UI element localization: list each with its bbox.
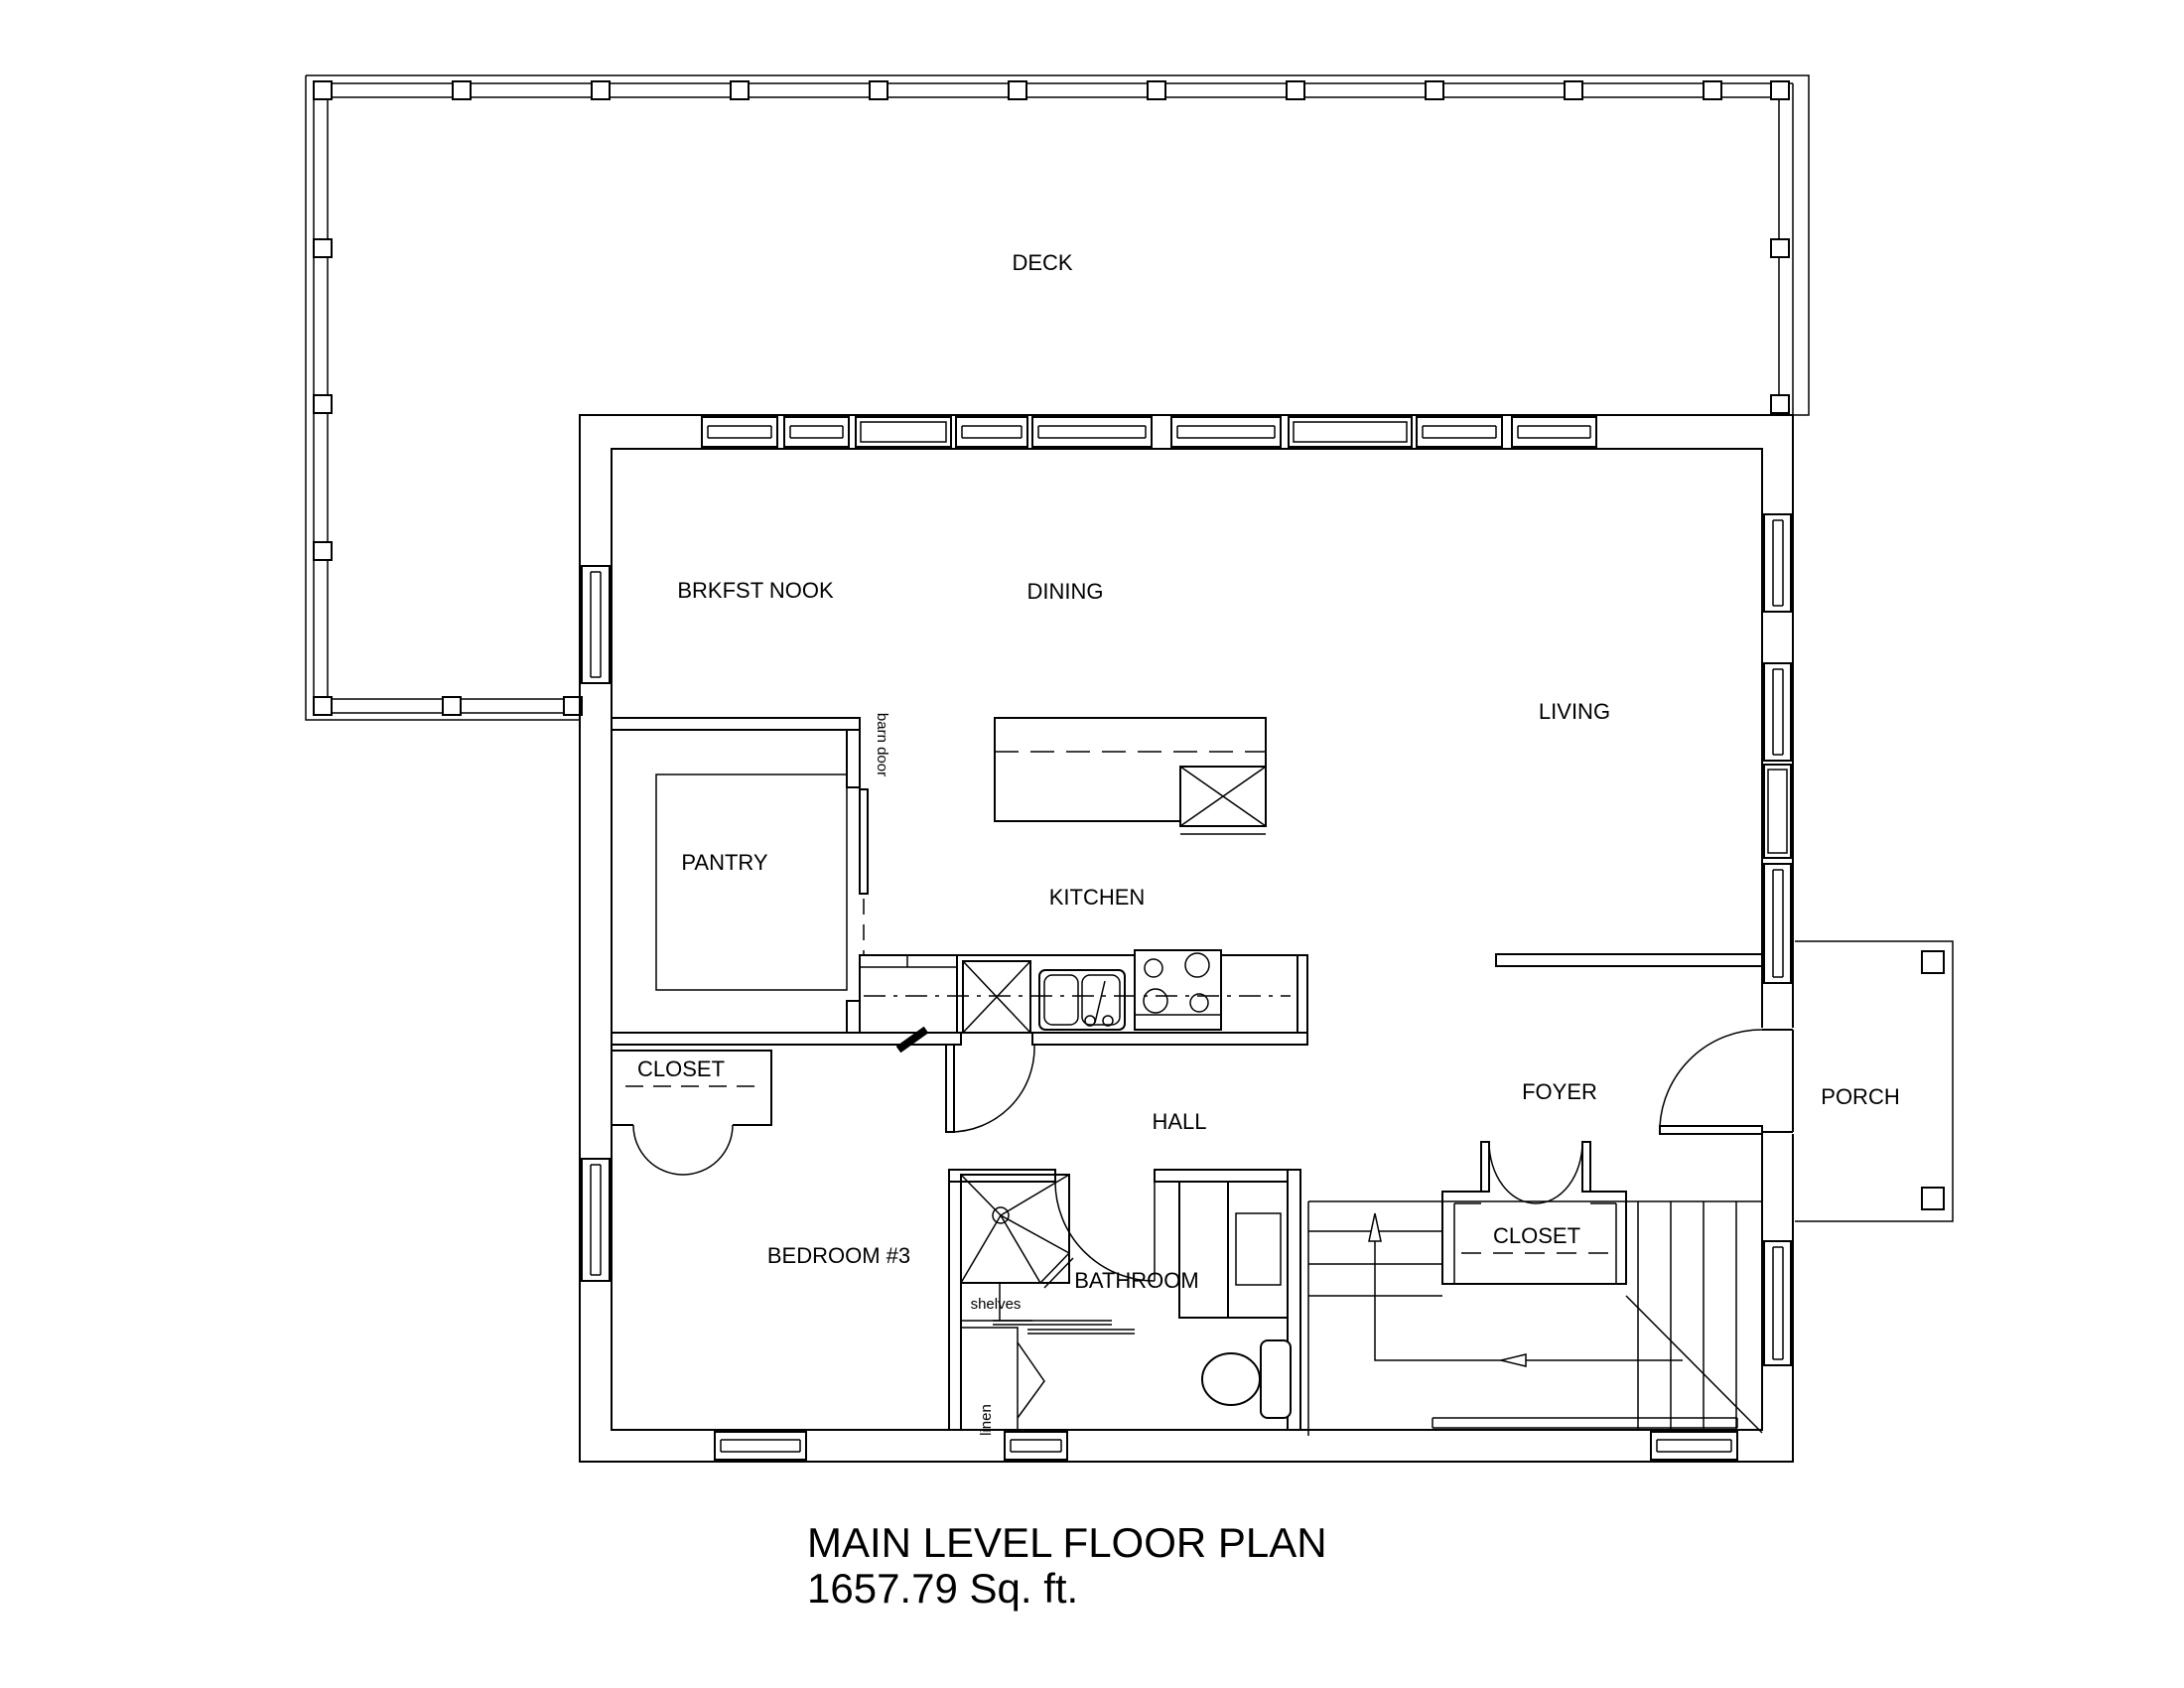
bathroom-label: BATHROOM	[1074, 1268, 1198, 1293]
floor-plan-page: DECK BRKFST NOOK DINING LIVING PANTRY KI…	[0, 0, 2184, 1688]
exterior-walls	[580, 415, 1793, 1462]
bedroom-closet-label: CLOSET	[637, 1056, 725, 1081]
deck-label: DECK	[1012, 250, 1072, 275]
stair-down-arrow	[1501, 1354, 1526, 1366]
pantry	[656, 774, 868, 998]
kitchen-counter	[860, 718, 1307, 1050]
porch-label: PORCH	[1821, 1084, 1899, 1109]
windows-right-wall	[1764, 514, 1791, 1365]
bedroom-door	[946, 1045, 1034, 1132]
windows-top-wall	[702, 417, 1596, 447]
floor-plan-drawing: DECK BRKFST NOOK DINING LIVING PANTRY KI…	[0, 0, 2184, 1688]
stair-closet-label: CLOSET	[1493, 1223, 1580, 1248]
kitchen-island	[995, 718, 1266, 834]
porch	[1795, 941, 1953, 1221]
bedroom3-label: BEDROOM #3	[767, 1243, 910, 1268]
dishwasher	[963, 961, 1030, 1033]
bedroom-closet-doors	[633, 1125, 733, 1175]
stair-up-arrow	[1369, 1213, 1381, 1241]
linen-label: linen	[978, 1404, 995, 1436]
room-labels: DECK BRKFST NOOK DINING LIVING PANTRY KI…	[637, 250, 1900, 1293]
pantry-label: PANTRY	[681, 850, 768, 875]
living-label: LIVING	[1539, 699, 1610, 724]
front-door	[1660, 1028, 1797, 1134]
title-block: MAIN LEVEL FLOOR PLAN 1657.79 Sq. ft.	[807, 1519, 1327, 1612]
stove-cooktop	[1135, 950, 1221, 1030]
foyer-label: FOYER	[1522, 1079, 1597, 1104]
windows-left-wall	[582, 566, 610, 1281]
brkfst-nook-label: BRKFST NOOK	[677, 578, 834, 603]
kitchen-label: KITCHEN	[1049, 885, 1146, 910]
refrigerator	[860, 955, 957, 1033]
kitchen-sink	[1039, 970, 1125, 1030]
hall-label: HALL	[1152, 1109, 1206, 1134]
plan-title: MAIN LEVEL FLOOR PLAN	[807, 1519, 1327, 1566]
windows-bottom-wall	[715, 1432, 1737, 1460]
barn-door-label: barn door	[874, 713, 890, 776]
toilet	[1202, 1340, 1291, 1418]
plan-area: 1657.79 Sq. ft.	[807, 1565, 1078, 1612]
dining-label: DINING	[1027, 579, 1104, 604]
linen-closet	[961, 1328, 1044, 1430]
shelves-label: shelves	[971, 1296, 1022, 1313]
barn-door-panel	[860, 789, 868, 894]
deck-railing	[306, 75, 1809, 720]
stair-closet	[1442, 1142, 1626, 1284]
vanity	[1179, 1182, 1288, 1318]
